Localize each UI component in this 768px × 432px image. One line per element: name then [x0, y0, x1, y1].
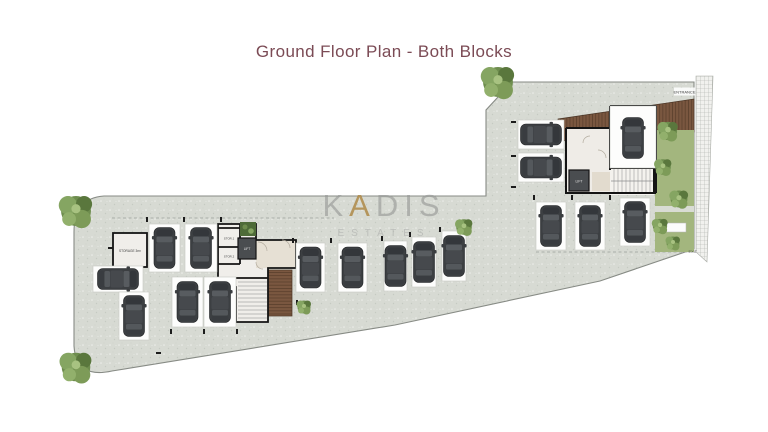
car-icon [521, 155, 562, 180]
parking-spot [518, 120, 564, 149]
parking-spot [610, 106, 656, 168]
stair-room-right [610, 168, 654, 195]
car-icon [98, 266, 139, 291]
parking-spot [338, 243, 367, 292]
parking-spot [411, 237, 436, 287]
floor-plan-page: Ground Floor Plan - Both Blocks [0, 0, 768, 432]
planter-leaf [243, 225, 248, 230]
storage1-label: STOR.1 [224, 237, 235, 241]
car-icon [411, 242, 436, 283]
storage-room-label: STORAGE 3m² [119, 249, 141, 253]
car-icon [577, 206, 602, 247]
floor-plan-drawing: LIFT ENTRANCE EXIT [0, 0, 768, 432]
lift-left-label: LIFT [244, 247, 251, 251]
car-icon [121, 296, 146, 337]
building-right-lobby [592, 172, 610, 191]
parking-spot [518, 153, 564, 182]
car-icon [521, 122, 562, 147]
tree-icon [59, 196, 92, 228]
car-icon [620, 118, 645, 159]
parking-spot [575, 202, 605, 250]
car-icon [383, 246, 408, 287]
parking-spot [172, 277, 203, 327]
car-icon [175, 282, 200, 323]
parking-spot [185, 224, 217, 272]
tree-icon [60, 353, 92, 384]
car-icon [298, 247, 323, 288]
planter-left [240, 222, 256, 236]
parking-spot [204, 277, 236, 327]
planter-leaf [248, 228, 254, 234]
car-icon [188, 228, 213, 269]
storage2-label: STOR.2 [224, 255, 235, 259]
parking-spot [119, 292, 149, 340]
parking-spot [93, 266, 143, 292]
parking-spot [536, 202, 566, 250]
car-icon [152, 228, 177, 269]
building-left-lobby [256, 240, 296, 268]
deck-left [268, 270, 292, 316]
parking-spot [441, 231, 466, 281]
parking-spot [149, 224, 180, 272]
car-icon [538, 206, 563, 247]
parking-spot [620, 198, 650, 246]
parking-spot [383, 241, 408, 291]
car-icon [340, 247, 365, 288]
parking-spot [296, 243, 325, 292]
car-icon [622, 202, 647, 243]
exit-label: EXIT [689, 250, 698, 254]
tree-icon [481, 67, 514, 99]
lift-right-label: LIFT [576, 180, 583, 184]
sidewalk-tiles [696, 76, 713, 262]
car-icon [207, 282, 232, 323]
entrance-label: ENTRANCE [673, 90, 695, 95]
car-icon [441, 236, 466, 277]
